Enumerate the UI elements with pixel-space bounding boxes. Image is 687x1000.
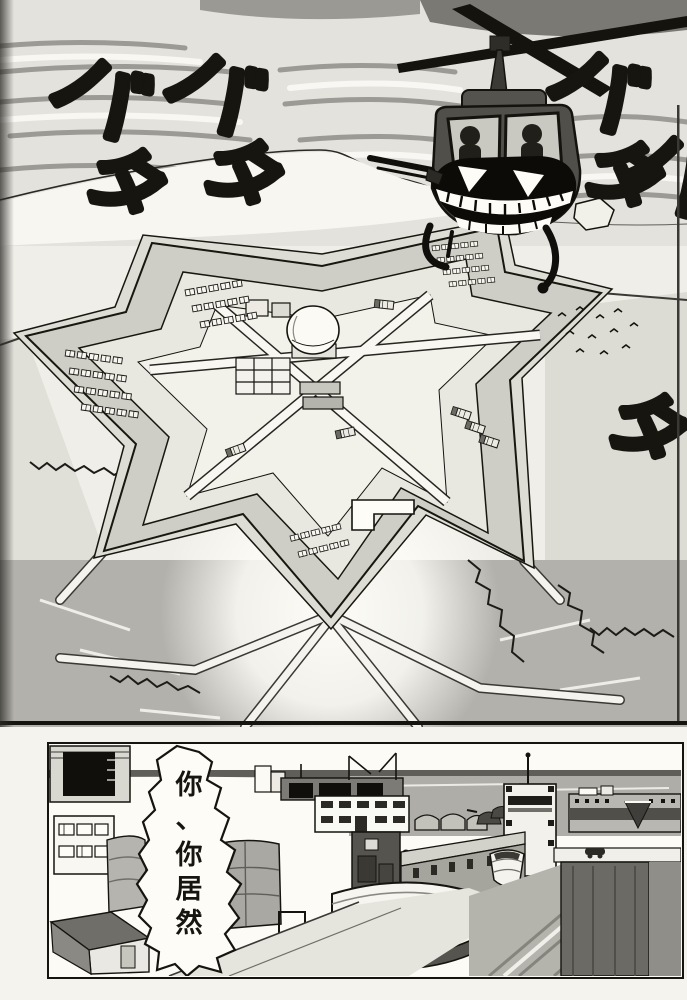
quonset-huts xyxy=(415,814,487,830)
panel-border-bottom xyxy=(0,721,687,725)
radar-dome xyxy=(287,306,339,358)
garage-building xyxy=(50,746,130,802)
manga-page: バ タ バ タ バ タ バ タ xyxy=(0,0,687,1000)
panel-border-right xyxy=(677,105,680,721)
bubble-char-5: 然 xyxy=(176,907,203,939)
garage-door xyxy=(63,752,115,796)
scan-gutter xyxy=(0,0,14,727)
office-building-center xyxy=(315,796,409,832)
bubble-char-1: 你 xyxy=(175,770,203,801)
panel-aerial-fortress: バ タ バ タ バ タ バ タ xyxy=(0,0,687,727)
bubble-char-2: 、 xyxy=(176,804,203,835)
tarp-stack-small xyxy=(107,836,147,912)
quay-top xyxy=(554,848,681,862)
panel-dockyard: 你 、 你 居 然 xyxy=(47,742,684,979)
bubble-char-4: 居 xyxy=(176,874,203,905)
bubble-char-3: 你 xyxy=(175,840,203,871)
